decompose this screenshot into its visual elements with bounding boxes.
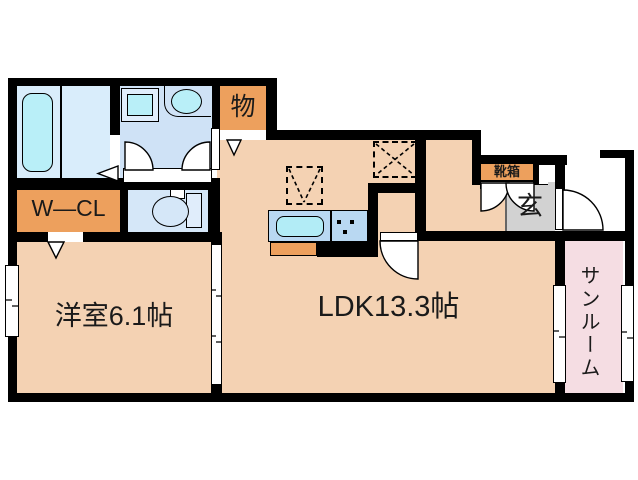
washroom-doors-band [123, 168, 212, 183]
cabinet-space [286, 166, 323, 205]
room-label-western: 洋室6.1帖 [17, 302, 211, 330]
room-label-wcl: W—CL [17, 196, 120, 220]
shoebox-doors [480, 181, 534, 189]
wall-western-top [8, 232, 222, 242]
washroom-door-leaf [211, 128, 220, 170]
wall-kitchen-base [317, 242, 378, 257]
room-label-entrance: 玄 [505, 193, 555, 220]
bathtub [22, 93, 53, 172]
toilet-bowl [152, 196, 189, 227]
stove-burner-dot [350, 220, 354, 224]
wall-wcl-toilet [120, 186, 128, 232]
storage-door-opening [227, 130, 258, 140]
front-door-arc [563, 190, 603, 230]
window-sunroom-right [621, 285, 634, 382]
wall-top-ldk [266, 130, 481, 140]
wall-bottom [8, 393, 634, 402]
wall-bath-door-jamb [110, 86, 120, 135]
room-label-sunroom: サンルーム [577, 260, 598, 385]
front-door-leaf [555, 188, 563, 230]
wall-notch [538, 165, 548, 185]
room-label-ldk: LDK13.3帖 [222, 292, 555, 322]
room-label-shoebox: 靴箱 [479, 165, 535, 179]
stove-burner-dot [337, 220, 341, 224]
stove-burner-dot [343, 230, 347, 234]
vanity-basin [171, 89, 202, 114]
wcl-door-opening [48, 232, 83, 242]
room-ldk-shoearea [480, 182, 507, 232]
kitchen-counter-front [270, 242, 317, 256]
kitchen-counter-divider [330, 210, 332, 242]
wall-corridor-left [415, 140, 426, 233]
ldk-hall-door-leaf [380, 232, 418, 241]
washing-machine [127, 94, 153, 116]
sliding-partition [211, 244, 222, 385]
bathroom-divider-line [60, 86, 62, 178]
refrigerator-space [373, 141, 417, 178]
wall-wash-right-upper [212, 86, 220, 130]
wall-entrance-right [555, 155, 565, 190]
wall-top-left [8, 78, 277, 86]
bath-door-opening [110, 135, 120, 178]
wall-sunroom-top [418, 231, 634, 241]
kitchen-sink [276, 216, 324, 237]
room-label-storage: 物 [220, 94, 266, 120]
floor-plan: 洋室6.1帖 LDK13.3帖 W—CL 物 靴箱 玄 サンルーム [0, 0, 638, 480]
